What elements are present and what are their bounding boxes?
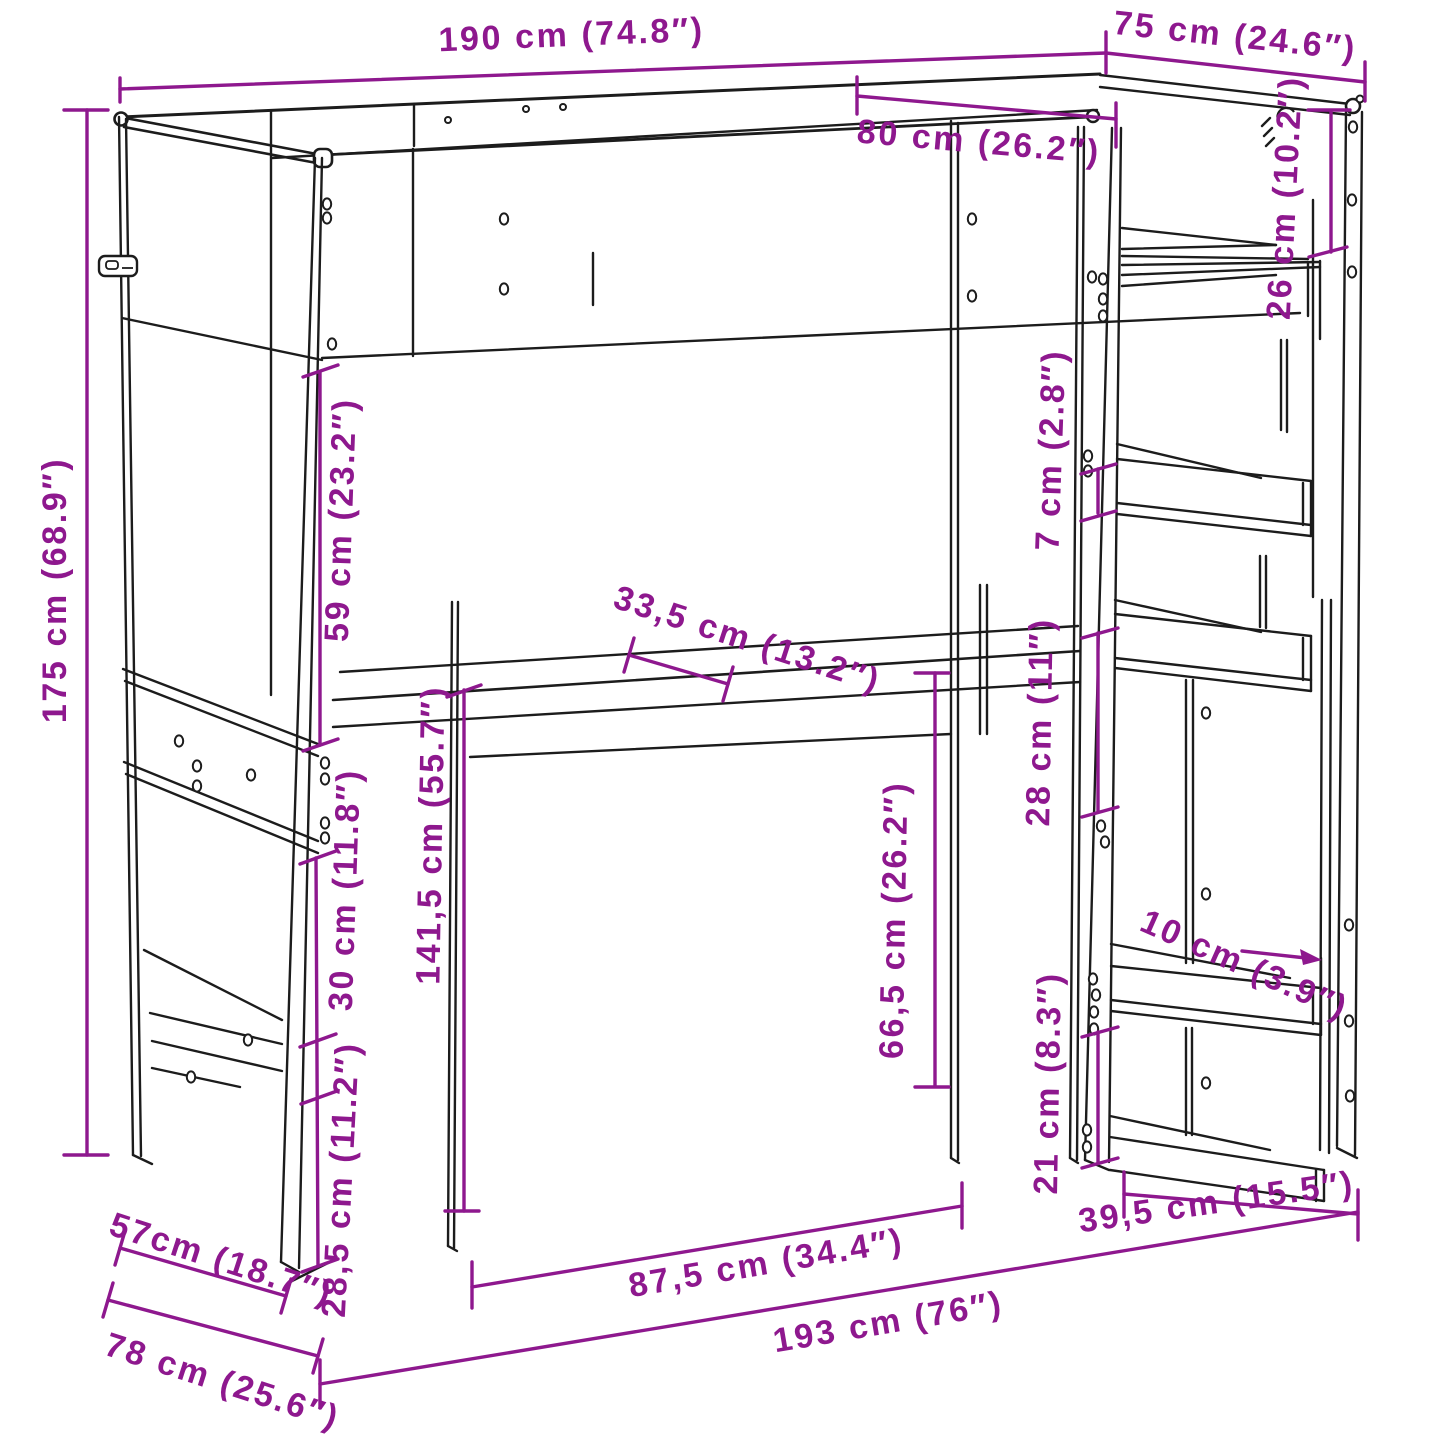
svg-text:175 cm (68.9″): 175 cm (68.9″) xyxy=(36,457,74,723)
svg-text:21 cm (8.3″): 21 cm (8.3″) xyxy=(1027,971,1069,1195)
svg-text:7 cm (2.8″): 7 cm (2.8″) xyxy=(1028,348,1073,551)
svg-text:28 cm (11″): 28 cm (11″) xyxy=(1019,617,1061,827)
svg-text:141,5 cm (55.7″): 141,5 cm (55.7″) xyxy=(409,685,452,985)
svg-text:66,5 cm (26.2″): 66,5 cm (26.2″) xyxy=(873,780,916,1059)
